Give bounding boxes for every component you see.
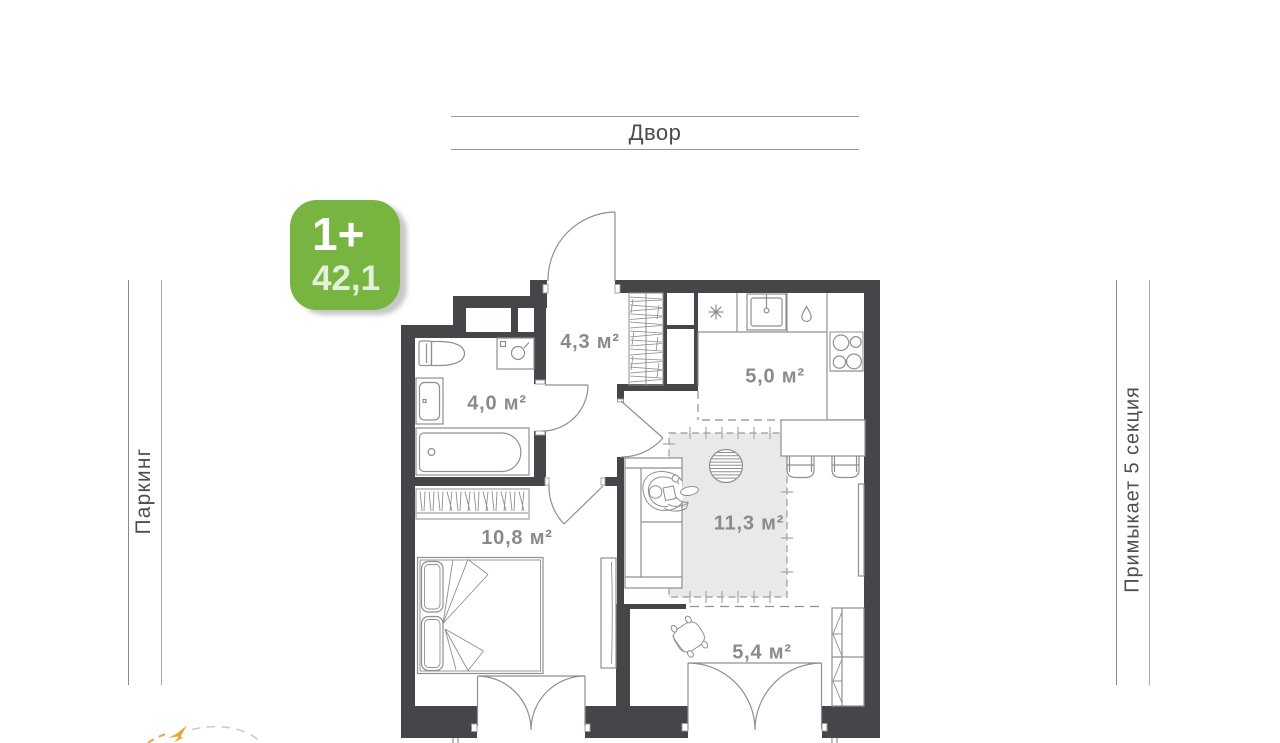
svg-text:5,4 м²: 5,4 м² (732, 642, 792, 664)
svg-text:4,0 м²: 4,0 м² (467, 393, 527, 415)
svg-text:10,8 м²: 10,8 м² (481, 527, 553, 549)
svg-text:11,3 м²: 11,3 м² (714, 513, 784, 535)
svg-text:5,0 м²: 5,0 м² (745, 366, 805, 388)
svg-text:4,3 м²: 4,3 м² (560, 331, 620, 353)
